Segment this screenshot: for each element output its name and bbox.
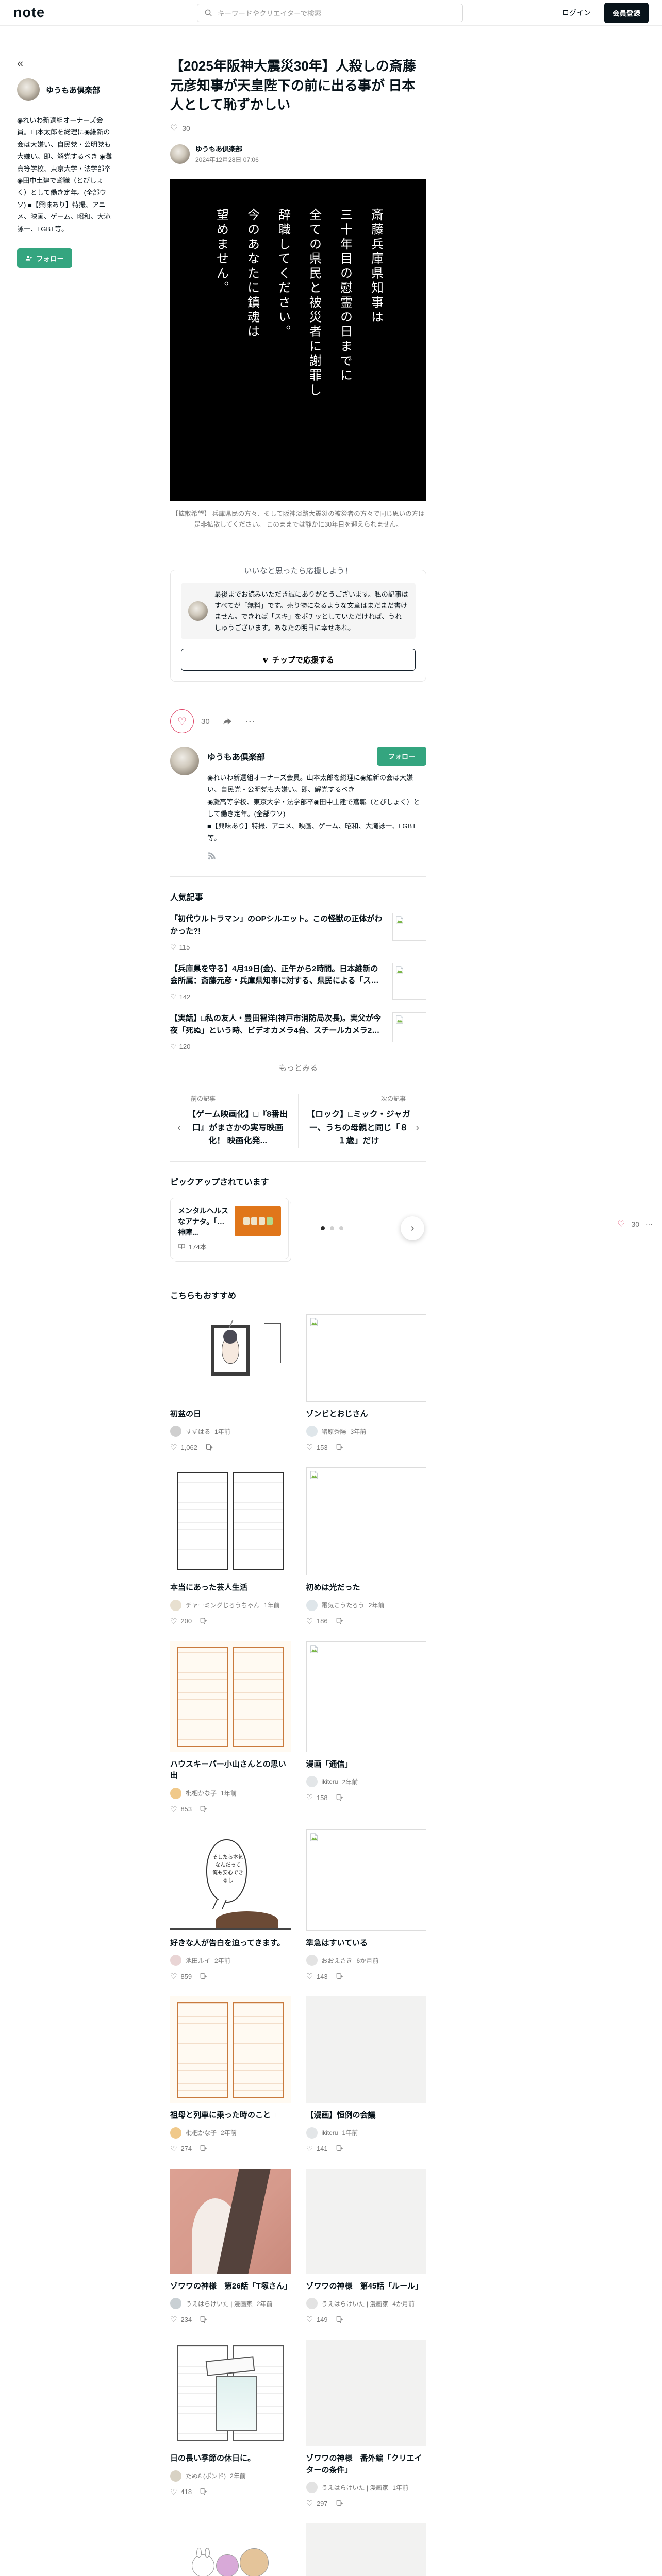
add-magazine-icon[interactable]	[336, 1973, 343, 1980]
like-count: 297	[317, 2500, 328, 2507]
article-author[interactable]: たぬ£ (ポンド) 2年前	[170, 2470, 291, 2482]
article-author[interactable]: 電気こうたろう 2年前	[306, 1600, 427, 1611]
author-card: ゆうもあ倶楽部 フォロー ◉れいわ新選組オーナーズ会員。山本太郎を総理に◉維新の…	[170, 747, 426, 877]
add-magazine-icon[interactable]	[205, 1444, 213, 1451]
article-title: 【2025年阪神大震災30年】人殺しの斎藤元彦知事が天皇陛下の前に出る事が 日本…	[170, 57, 426, 115]
author-sidebar: « ゆうもあ倶楽部 ◉れいわ新選組オーナーズ会員。山本太郎を総理に◉維新の会は大…	[17, 57, 112, 2576]
popular-item[interactable]: 【実話】□私の友人・豊田智洋(神戸市消防局次長)。実父が今夜「死ぬ」という時、ビ…	[170, 1012, 426, 1051]
publish-time: 1年前	[214, 1427, 230, 1436]
recommend-card[interactable]: 日の長い季節の休日に。 たぬ£ (ポンド) 2年前 ♡ 418	[170, 2340, 291, 2508]
image-text-line: 今のあなたに鎮魂は	[237, 208, 268, 501]
author-name: うえはらけいた | 漫画家	[322, 2483, 389, 2492]
article-main: 【2025年阪神大震災30年】人殺しの斎藤元彦知事が天皇陛下の前に出る事が 日本…	[170, 57, 426, 2576]
search-box[interactable]: キーワードやクリエイターで検索	[197, 4, 463, 22]
support-heading: いいなと思ったら応援しよう！	[171, 565, 426, 576]
article-stats: ♡ 143	[306, 1972, 427, 1981]
like-count: 418	[180, 2488, 192, 2496]
article-author[interactable]: 枇杷かな子 1年前	[170, 1788, 291, 1799]
article-stats: ♡ 234	[170, 2315, 291, 2324]
bio-segment: ■【興味あり】特撮、アニメ、映画、ゲーム、昭和、大滝詠一、LGBT等。	[17, 201, 111, 233]
heart-icon: ♡	[170, 993, 176, 1001]
publish-date: 2024年12月28日 07:06	[195, 155, 259, 164]
avatar	[188, 601, 208, 621]
like-count: 149	[317, 2316, 328, 2324]
avatar	[170, 2298, 181, 2309]
content-area: « ゆうもあ倶楽部 ◉れいわ新選組オーナーズ会員。山本太郎を総理に◉維新の会は大…	[0, 26, 662, 2576]
heart-icon[interactable]: ♡	[170, 1617, 177, 1626]
author-name[interactable]: ゆうもあ倶楽部	[207, 750, 265, 762]
broken-image-icon	[395, 965, 404, 975]
like-count: 30	[631, 1220, 639, 1228]
book-icon	[178, 1243, 186, 1250]
image-text-line: 斎藤兵庫県知事は	[360, 208, 391, 501]
popular-heading: 人気記事	[170, 890, 426, 903]
heart-icon[interactable]: ♡	[306, 1793, 313, 1802]
avatar	[170, 144, 190, 164]
note-logo[interactable]: note	[13, 5, 45, 21]
popular-title[interactable]: 「初代ウルトラマン」のOPシルエット。この怪獣の正体がわかった?!	[170, 913, 384, 937]
magazine-thumbnail	[235, 1206, 281, 1236]
article-thumbnail	[306, 2523, 427, 2576]
article-stats: ♡ 859	[170, 1972, 291, 1981]
popular-thumbnail	[392, 1012, 426, 1042]
magazine-title[interactable]: メンタルヘルスなアナタ。「精神障...	[178, 1206, 229, 1236]
article-thumbnail	[170, 2523, 291, 2576]
article-title[interactable]: ハウスキーパー小山さんとの思い出	[170, 1759, 291, 1782]
add-magazine-icon[interactable]	[336, 1794, 343, 1802]
avatar	[170, 1600, 181, 1611]
article-thumbnail	[170, 1467, 291, 1575]
article-image: 斎藤兵庫県知事は 三十年目の慰霊の日までに 全ての県民と被災者に謝罪し 辞職して…	[170, 179, 426, 501]
article-stats: ♡ 149	[306, 2315, 427, 2324]
prev-article[interactable]: 前の記事 ‹ 【ゲーム映画化】□『8番出口』がまさかの実写映画化！ 映画化発..…	[170, 1094, 299, 1148]
recommend-card[interactable]: 【漫画】恒例の会議 ikiteru 1年前 ♡ 141	[306, 1996, 427, 2154]
broken-image-icon	[309, 1645, 319, 1654]
heart-icon[interactable]: ♡	[170, 1443, 177, 1452]
add-magazine-icon[interactable]	[336, 1444, 343, 1451]
author-name: ikiteru	[322, 1778, 338, 1785]
like-count: 115	[179, 943, 190, 951]
author-name: ikiteru	[322, 2129, 338, 2137]
article-author[interactable]: ikiteru 2年前	[306, 1776, 427, 1787]
article-author[interactable]: おおえさき 6か月前	[306, 1955, 427, 1966]
like-count: 142	[179, 993, 191, 1001]
pickup-carousel: メンタルヘルスなアナタ。「精神障... 174本 ›	[170, 1198, 426, 1275]
popular-item[interactable]: 【兵庫県を守る】4月19日(金)、正午から2時間。日本維新の会所属：斎藤元彦・兵…	[170, 963, 426, 1002]
author-name: 枇杷かな子	[186, 2128, 217, 2137]
popular-item[interactable]: 「初代ウルトラマン」のOPシルエット。この怪獣の正体がわかった?! ♡115	[170, 913, 426, 952]
bio-segment: ◉灘高等学校、東京大学・法学部卒◉田中土建で鳶職（とびしょく）として働き定年。(…	[17, 152, 112, 209]
article-author[interactable]: 池田ルイ 2年前	[170, 1955, 291, 1966]
recommend-card[interactable]: 本当にあった芸人生活 チャーミングじろうちゃん 1年前 ♡ 200	[170, 1467, 291, 1626]
author-name: ゆうもあ倶楽部	[46, 84, 100, 95]
login-link[interactable]: ログイン	[562, 8, 591, 18]
article-thumbnail	[306, 1314, 427, 1402]
byline-author[interactable]: ゆうもあ倶楽部	[195, 144, 259, 154]
like-count: 158	[317, 1794, 328, 1802]
publish-time: 1年前	[264, 1601, 280, 1609]
recommend-card[interactable]: 祖母と列車に乗った時のこと□ 枇杷かな子 2年前 ♡ 274	[170, 1996, 291, 2154]
heart-icon[interactable]: ♡	[170, 1805, 177, 1814]
popular-title[interactable]: 【兵庫県を守る】4月19日(金)、正午から2時間。日本維新の会所属：斎藤元彦・兵…	[170, 963, 384, 987]
heart-icon[interactable]: ♡	[306, 1443, 313, 1452]
image-text-line: 全ての県民と被災者に謝罪し	[299, 208, 329, 501]
follow-button[interactable]: フォロー	[17, 248, 72, 268]
like-count: 853	[180, 1805, 192, 1813]
like-count: 200	[180, 1617, 192, 1625]
prev-label: 前の記事	[177, 1094, 291, 1103]
avatar	[170, 1955, 181, 1966]
image-text-line: 辞職してください。	[268, 208, 299, 501]
bio-segment: ◉れいわ新選組オーナーズ会員。山本太郎を総理に◉維新の会は大嫌い、自民党・公明党…	[17, 116, 111, 160]
article-stats: ♡ 141	[306, 2144, 427, 2154]
like-count: 1,062	[180, 1444, 197, 1451]
article-title[interactable]: ゾワワの神様 第45話「ルール」	[306, 2281, 427, 2293]
add-magazine-icon[interactable]	[200, 2316, 207, 2324]
divider	[170, 1161, 426, 1162]
avatar	[306, 2298, 318, 2309]
pickup-card[interactable]: メンタルヘルスなアナタ。「精神障... 174本	[170, 1198, 289, 1259]
add-magazine-icon[interactable]	[336, 2500, 343, 2507]
heart-icon[interactable]: ♡	[306, 1972, 313, 1981]
recommend-card[interactable]: 春のお話を再掲します「運び屋」 すずはる 1年前 ♡ 551	[170, 2523, 291, 2576]
article-title[interactable]: 好きな人が告白を迫ってきます。	[170, 1938, 291, 1950]
avatar	[306, 2127, 318, 2139]
author-name: たぬ£ (ポンド)	[186, 2471, 226, 2480]
recommend-card[interactable]: ゾワワの神様 第26話「T塚さん」 うえはらけいた | 漫画家 2年前 ♡ 23…	[170, 2169, 291, 2325]
divider	[170, 1275, 426, 1275]
magazine-count: 174本	[178, 1242, 281, 1251]
article-stats: ♡ 418	[170, 2487, 291, 2497]
avatar	[170, 1788, 181, 1799]
article-thumbnail	[170, 2340, 291, 2446]
recommend-card[interactable]: 初盆の日 すずはる 1年前 ♡ 1,062	[170, 1314, 291, 1452]
add-magazine-icon[interactable]	[336, 2145, 343, 2153]
add-magazine-icon[interactable]	[200, 1973, 207, 1980]
recommend-card[interactable]: そしたら本気なんだって俺も安心できるし 好きな人が告白を迫ってきます。 池田ルイ…	[170, 1829, 291, 1981]
like-button[interactable]: ♡	[170, 709, 194, 733]
page: note キーワードやクリエイターで検索 ログイン 会員登録 « ゆうもあ倶楽部…	[0, 0, 662, 2576]
article-stats: ♡ 153	[306, 1443, 427, 1452]
recommend-card[interactable]: ゾワワの神様 番外編「クリエイターの条件」 うえはらけいた | 漫画家 1年前 …	[306, 2340, 427, 2508]
heart-icon[interactable]: ♡	[170, 2315, 177, 2324]
article-thumbnail	[170, 2169, 291, 2274]
article-author[interactable]: 枇杷かな子 2年前	[170, 2127, 291, 2139]
article-thumbnail	[170, 1641, 291, 1752]
article-thumbnail	[306, 1996, 427, 2103]
article-author[interactable]: うえはらけいた | 漫画家 1年前	[306, 2482, 427, 2493]
recommend-card[interactable]: 初めは光だった 電気こうたろう 2年前 ♡ 186	[306, 1467, 427, 1626]
article-author[interactable]: チャーミングじろうちゃん 1年前	[170, 1600, 291, 1611]
publish-time: 2年前	[221, 2128, 237, 2137]
next-label: 次の記事	[306, 1094, 420, 1103]
next-article[interactable]: 次の記事 【ロック】□ミック・ジャガー、うちの母親と同じ「８１歳」だけ ›	[299, 1094, 427, 1148]
bio-line: ■【興味あり】特撮、アニメ、映画、ゲーム、昭和、大滝詠一、LGBT等。	[207, 820, 426, 844]
author-name: うえはらけいた | 漫画家	[322, 2299, 389, 2308]
pickup-heading: ピックアップされています	[170, 1175, 426, 1188]
bio-line: ◉れいわ新選組オーナーズ会員。山本太郎を総理に◉維新の会は大嫌い、自民党・公明党…	[207, 772, 426, 796]
tip-button[interactable]: ♥¥ チップで応援する	[181, 649, 416, 671]
article-stats: ♡ 297	[306, 2499, 427, 2508]
author-name: うえはらけいた | 漫画家	[186, 2299, 253, 2308]
article-stats: ♡ 200	[170, 1617, 291, 1626]
image-text-line: 三十年目の慰霊の日までに	[329, 208, 360, 501]
author-name: すずはる	[186, 1427, 210, 1436]
tip-button-label: チップで応援する	[272, 654, 334, 665]
like-count: 274	[180, 2145, 192, 2153]
sidebar-author[interactable]: ゆうもあ倶楽部	[17, 78, 112, 101]
heart-icon[interactable]: ♡	[170, 2487, 177, 2497]
avatar	[170, 2127, 181, 2139]
avatar	[306, 1955, 318, 1966]
article-thumbnail	[170, 1314, 291, 1402]
search-placeholder: キーワードやクリエイターで検索	[218, 8, 321, 18]
add-magazine-icon[interactable]	[200, 2488, 207, 2496]
like-count: 120	[179, 1043, 191, 1050]
publish-time: 2年前	[230, 2471, 246, 2480]
article-stats: ♡ 158	[306, 1793, 427, 1802]
search-icon	[204, 9, 212, 17]
publish-time: 2年前	[257, 2299, 273, 2308]
like-count: 143	[317, 1973, 328, 1980]
more-button[interactable]: ⋯	[245, 715, 256, 728]
image-caption: 【拡散希望】 兵庫県民の方々、そして阪神淡路大震災の被災者の方々で同じ思いの方は…	[170, 509, 426, 530]
article-thumbnail: そしたら本気なんだって俺も安心できるし	[170, 1829, 291, 1931]
heart-icon: ♡	[170, 1043, 176, 1051]
floating-action-bar: ♡ 30 ⋯	[617, 1219, 653, 1229]
carousel-next-button[interactable]: ›	[401, 1216, 424, 1240]
like-count: 141	[317, 2145, 328, 2153]
support-message-box: 最後までお読みいただき誠にありがとうございます。私の記事はすべてが「無料」です。…	[181, 583, 416, 639]
title-like-row: ♡ 30	[170, 123, 426, 133]
add-magazine-icon[interactable]	[200, 2145, 207, 2153]
signup-button[interactable]: 会員登録	[604, 3, 649, 23]
next-title[interactable]: 【ロック】□ミック・ジャガー、うちの母親と同じ「８１歳」だけ	[306, 1108, 412, 1148]
byline[interactable]: ゆうもあ倶楽部 2024年12月28日 07:06	[170, 144, 426, 164]
author-bio: ◉れいわ新選組オーナーズ会員。山本太郎を総理に◉維新の会は大嫌い、自民党・公明党…	[207, 772, 426, 844]
avatar	[170, 1426, 181, 1437]
broken-image-icon	[395, 916, 404, 925]
heart-icon[interactable]: ♡	[170, 2144, 177, 2154]
article-title[interactable]: ゾワワの神様 番外編「クリエイターの条件」	[306, 2453, 427, 2476]
popular-title[interactable]: 【実話】□私の友人・豊田智洋(神戸市消防局次長)。実父が今夜「死ぬ」という時、ビ…	[170, 1012, 384, 1037]
author-name: 池田ルイ	[186, 1956, 210, 1965]
more-icon[interactable]: ⋯	[646, 1220, 653, 1229]
chevron-right-icon: ›	[416, 1122, 419, 1134]
prev-title[interactable]: 【ゲーム映画化】□『8番出口』がまさかの実写映画化！ 映画化発...	[185, 1108, 291, 1148]
tip-heart-icon: ♥¥	[262, 655, 268, 665]
broken-image-icon	[395, 1015, 404, 1024]
person-add-icon	[25, 255, 32, 262]
publish-time: 1年前	[392, 2483, 408, 2492]
like-count: 234	[180, 2316, 192, 2324]
add-magazine-icon[interactable]	[200, 1805, 207, 1813]
heart-icon: ♡	[177, 715, 187, 728]
publish-time: 6か月前	[357, 1956, 379, 1965]
heart-icon[interactable]: ♡	[170, 1972, 177, 1981]
recommend-card[interactable]: 準急はすいている おおえさき 6か月前 ♡ 143	[306, 1829, 427, 1981]
publish-time: 1年前	[221, 1789, 237, 1798]
add-magazine-icon[interactable]	[200, 1617, 207, 1625]
article-title[interactable]: 初めは光だった	[306, 1582, 427, 1594]
publish-time: 2年前	[369, 1601, 385, 1609]
publish-time: 2年前	[214, 1956, 230, 1965]
publish-time: 4か月前	[392, 2299, 415, 2308]
show-more-link[interactable]: もっとみる	[170, 1062, 426, 1073]
bio-line: ◉灘高等学校、東京大学・法学部卒◉田中土建で鳶職（とびしょく）として働き定年。(…	[207, 796, 426, 820]
popular-thumbnail	[392, 963, 426, 1000]
author-bio: ◉れいわ新選組オーナーズ会員。山本太郎を総理に◉維新の会は大嫌い、自民党・公明党…	[17, 114, 112, 235]
heart-icon[interactable]: ♡	[170, 123, 178, 133]
avatar	[306, 1426, 318, 1437]
avatar	[170, 2470, 181, 2482]
article-stats: ♡ 186	[306, 1617, 427, 1626]
article-title[interactable]: 本当にあった芸人生活	[170, 1582, 291, 1594]
avatar	[306, 1776, 318, 1787]
site-header: note キーワードやクリエイターで検索 ログイン 会員登録	[0, 0, 662, 26]
share-button[interactable]	[222, 716, 233, 726]
article-title[interactable]: 日の長い季節の休日に。	[170, 2453, 291, 2465]
heart-icon[interactable]: ♡	[306, 2144, 313, 2154]
article-thumbnail	[306, 1467, 427, 1575]
publish-time: 3年前	[351, 1427, 367, 1436]
author-name: おおえさき	[322, 1956, 353, 1965]
vertical-text: 斎藤兵庫県知事は 三十年目の慰霊の日までに 全ての県民と被災者に謝罪し 辞職して…	[206, 208, 391, 501]
chevron-left-icon: ‹	[177, 1122, 181, 1134]
author-name: 猪原秀陽	[322, 1427, 346, 1436]
article-stats: ♡ 853	[170, 1805, 291, 1814]
article-title[interactable]: 【漫画】恒例の会議	[306, 2110, 427, 2122]
publish-time: 1年前	[342, 2128, 358, 2137]
article-title[interactable]: 初盆の日	[170, 1409, 291, 1420]
follow-label: フォロー	[36, 253, 64, 263]
recommend-card[interactable]: Q.E.D.①～シュレーディンガーの庭～ ぷにょ 1年前 ♡ 254	[306, 2523, 427, 2576]
back-icon[interactable]: «	[17, 57, 29, 70]
article-author[interactable]: うえはらけいた | 漫画家 4か月前	[306, 2298, 427, 2309]
article-thumbnail	[306, 2169, 427, 2274]
recommend-card[interactable]: ゾンビとおじさん 猪原秀陽 3年前 ♡ 153	[306, 1314, 427, 1452]
author-name: 枇杷かな子	[186, 1789, 217, 1798]
article-title[interactable]: ゾンビとおじさん	[306, 1409, 427, 1420]
like-count: 153	[317, 1444, 328, 1451]
broken-image-icon	[309, 1317, 319, 1327]
article-author[interactable]: うえはらけいた | 漫画家 2年前	[170, 2298, 291, 2309]
publish-time: 2年前	[342, 1777, 358, 1786]
author-name: チャーミングじろうちゃん	[186, 1601, 260, 1609]
article-author[interactable]: 猪原秀陽 3年前	[306, 1426, 427, 1437]
heart-icon[interactable]: ♡	[306, 2499, 313, 2508]
like-count: 859	[180, 1973, 192, 1980]
article-author[interactable]: ikiteru 1年前	[306, 2127, 427, 2139]
article-title[interactable]: 漫画「通信」	[306, 1759, 427, 1771]
heart-icon[interactable]: ♡	[306, 1617, 313, 1626]
support-message: 最後までお読みいただき誠にありがとうございます。私の記事はすべてが「無料」です。…	[214, 589, 408, 633]
article-navigation: 前の記事 ‹ 【ゲーム映画化】□『8番出口』がまさかの実写映画化！ 映画化発..…	[170, 1086, 426, 1161]
article-author[interactable]: すずはる 1年前	[170, 1426, 291, 1437]
author-name: 電気こうたろう	[322, 1601, 365, 1609]
article-thumbnail	[306, 1829, 427, 1931]
like-count: 186	[317, 1617, 328, 1625]
heart-icon: ♡	[170, 943, 176, 952]
recommend-card[interactable]: ハウスキーパー小山さんとの思い出 枇杷かな子 1年前 ♡ 853	[170, 1641, 291, 1814]
carousel-dots[interactable]	[321, 1226, 343, 1230]
article-thumbnail	[306, 2340, 427, 2446]
article-title[interactable]: ゾワワの神様 第26話「T塚さん」	[170, 2281, 291, 2293]
avatar	[306, 2482, 318, 2493]
support-box: いいなと思ったら応援しよう！ 最後までお読みいただき誠にありがとうございます。私…	[170, 570, 426, 682]
add-magazine-icon[interactable]	[336, 2316, 343, 2324]
image-text-line: 望めません。	[206, 208, 237, 501]
article-action-bar: ♡ 30 ⋯	[170, 709, 426, 733]
article-stats: ♡ 1,062	[170, 1443, 291, 1452]
article-title[interactable]: 準急はすいている	[306, 1938, 427, 1950]
recommend-grid: 初盆の日 すずはる 1年前 ♡ 1,062	[170, 1314, 426, 2576]
follow-button[interactable]: フォロー	[377, 747, 426, 766]
article-thumbnail	[170, 1996, 291, 2103]
rss-icon[interactable]	[207, 851, 426, 863]
recommend-card[interactable]: ゾワワの神様 第45話「ルール」 うえはらけいた | 漫画家 4か月前 ♡ 14…	[306, 2169, 427, 2325]
heart-icon[interactable]: ♡	[617, 1219, 625, 1229]
article-thumbnail	[306, 1641, 427, 1752]
avatar[interactable]	[170, 747, 199, 775]
like-count: 30	[182, 124, 190, 132]
avatar	[17, 78, 40, 101]
avatar	[306, 1600, 318, 1611]
article-title[interactable]: 祖母と列車に乗った時のこと□	[170, 2110, 291, 2122]
broken-image-icon	[309, 1833, 319, 1842]
like-count: 30	[201, 717, 210, 726]
heart-icon[interactable]: ♡	[306, 2315, 313, 2324]
note-count: 174本	[189, 1242, 207, 1251]
popular-thumbnail	[392, 913, 426, 941]
broken-image-icon	[309, 1470, 319, 1480]
header-actions: ログイン 会員登録	[562, 3, 649, 23]
share-icon	[222, 716, 233, 726]
recommend-card[interactable]: 漫画「通信」 ikiteru 2年前 ♡ 158	[306, 1641, 427, 1814]
add-magazine-icon[interactable]	[336, 1617, 343, 1625]
recommend-heading: こちらもおすすめ	[170, 1289, 426, 1301]
article-stats: ♡ 274	[170, 2144, 291, 2154]
